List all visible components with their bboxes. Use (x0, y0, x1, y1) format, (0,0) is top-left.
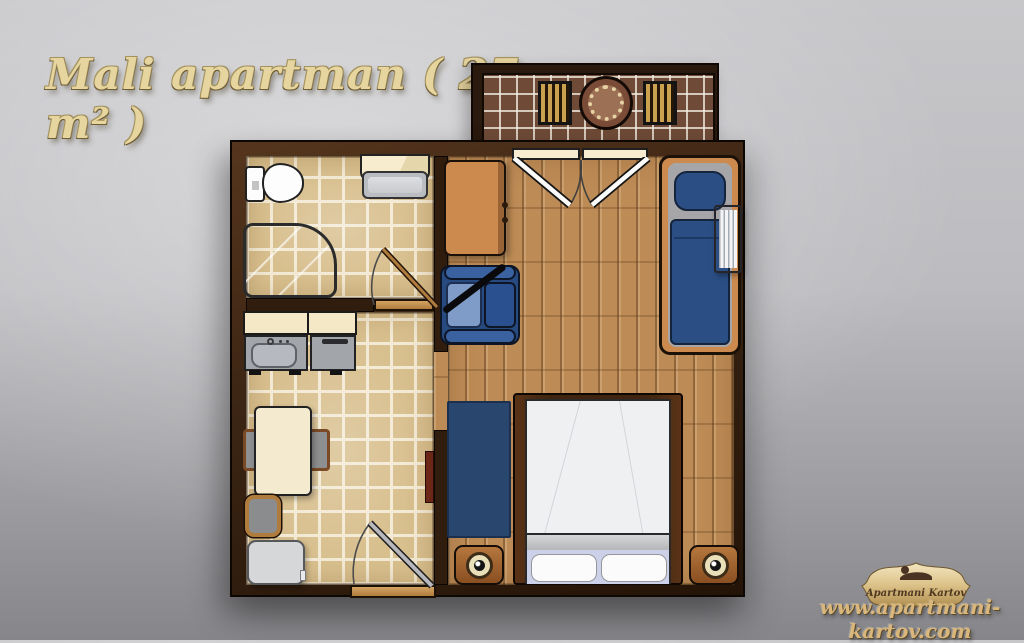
counter-foot (289, 370, 301, 375)
lamp (702, 552, 729, 579)
kitchen-countertop-left (243, 311, 309, 335)
nightstand-right (689, 545, 739, 585)
balcony-door-sill-right (582, 148, 648, 160)
wall-kitchen-right (434, 430, 448, 585)
kitchen-faucet (267, 338, 274, 345)
kitchen-sink-unit (244, 335, 308, 371)
balcony-chair-left (538, 81, 572, 125)
brand-badge: Apartmani Kartov (856, 560, 976, 610)
wardrobe-handle (502, 217, 508, 223)
badge-shape (862, 563, 970, 607)
lamp-center (710, 560, 721, 571)
bedside-rug (447, 401, 511, 538)
double-bed-duvet (525, 399, 671, 535)
page-background: { "title": "Mali apartman ( 27 m² )", "w… (0, 0, 1024, 640)
shower (243, 223, 337, 298)
kitchen-countertop-right (307, 311, 357, 335)
counter-foot (330, 370, 342, 375)
fridge (247, 540, 305, 585)
kitchen-radiator (425, 451, 434, 503)
stove-slot (322, 339, 348, 344)
armchair-arm-bottom (444, 329, 516, 344)
dining-table (254, 406, 312, 496)
badge-label: Apartmani Kartov (865, 588, 966, 599)
balcony (471, 63, 719, 148)
wall-radiator (714, 205, 742, 273)
balcony-door-sill-left (512, 148, 580, 160)
washbasin-bowl (368, 177, 422, 193)
double-bed-blanket-roll (525, 535, 671, 550)
double-bed-pillow-left (531, 554, 597, 582)
bed-icon (901, 566, 909, 574)
armchair (440, 265, 520, 345)
kitchen-tap-left (279, 340, 282, 343)
balcony-chair-right (643, 81, 677, 125)
website-watermark: www.apartmani-kartov.com (796, 595, 1024, 643)
double-bed-pillow-right (601, 554, 667, 582)
balcony-table (579, 76, 633, 130)
wardrobe (444, 160, 506, 256)
double-bed (513, 393, 683, 585)
balcony-table-top (588, 85, 624, 121)
armchair-backrest (484, 282, 516, 328)
counter-foot (249, 370, 261, 375)
lamp (466, 552, 493, 579)
wardrobe-handle (502, 202, 508, 208)
washbasin (362, 171, 428, 199)
bed-icon (900, 572, 932, 580)
wardrobe-edge (498, 162, 504, 254)
wall-bathroom-south (246, 298, 374, 312)
kitchen-tap-right (286, 340, 289, 343)
bathroom-door-threshold (374, 299, 434, 311)
floor-plan (230, 140, 745, 597)
kitchen-sink-basin (251, 343, 297, 368)
entrance-threshold (350, 585, 436, 598)
nightstand-left (454, 545, 504, 585)
stool (245, 495, 281, 537)
fridge-handle (300, 570, 306, 581)
toilet-flush-button (252, 181, 259, 190)
lamp-center (474, 560, 485, 571)
kitchen-stove-unit (310, 335, 356, 371)
